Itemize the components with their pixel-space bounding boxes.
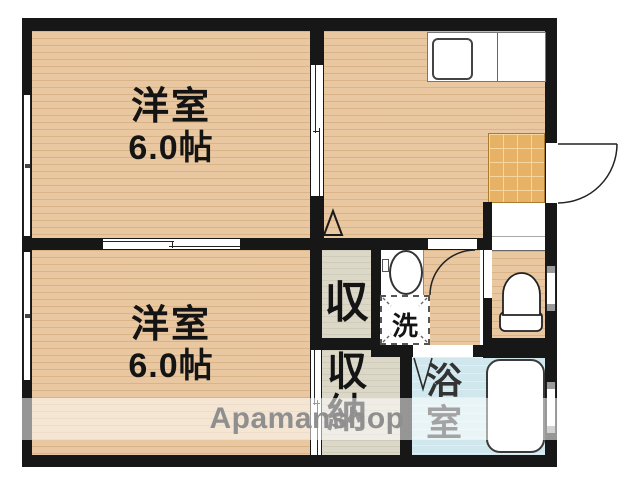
washbasin-faucet [382, 259, 389, 272]
entrance-door-opening [546, 143, 557, 203]
bathroom-threshold [413, 347, 473, 357]
window-top-room [23, 95, 31, 236]
western-room-bottom-label: 洋室 6.0帖 [32, 304, 310, 385]
entrance-step [492, 203, 545, 250]
sliding-door-between-rooms [103, 239, 240, 249]
room-name: 洋室 [32, 86, 310, 129]
window-bottom-room [23, 252, 31, 380]
window-toilet [546, 266, 556, 311]
western-room-top-label: 洋室 6.0帖 [32, 86, 310, 167]
laundry-label: 洗 [380, 306, 430, 343]
hallway-door-opening [428, 239, 477, 249]
bathroom-label-char1: 浴 [426, 360, 462, 402]
kitchen-counter [427, 32, 546, 82]
wall-toilet-bottom [483, 338, 557, 358]
wall-laundry-bottom [371, 345, 413, 357]
floor-plan: 洋室 6.0帖 洋室 6.0帖 収 収 納 洗 浴 室 Apamanshop [0, 0, 628, 480]
storage-label-char1: 収 [327, 352, 367, 394]
room-size: 6.0帖 [32, 129, 310, 167]
entrance-door-swing-arc [558, 144, 617, 203]
wall-top [22, 18, 557, 31]
wall-threshold-right [473, 345, 492, 357]
toilet-door-opening [484, 250, 492, 298]
room-size: 6.0帖 [32, 347, 310, 385]
washbasin [389, 250, 423, 295]
closet-label: 収 [322, 266, 371, 330]
watermark-text: Apamanshop [0, 398, 614, 440]
room-name: 洋室 [32, 304, 310, 347]
step-edge-line [492, 236, 545, 237]
counter-divider [497, 33, 498, 81]
kitchen-sink [432, 38, 473, 80]
wall-bottom [22, 455, 557, 467]
hallway-floor [424, 250, 480, 345]
wall-step-left [483, 202, 492, 238]
entrance-tile [488, 133, 545, 203]
toilet-room-floor [492, 250, 545, 338]
wall-mid-horizontal [22, 238, 492, 250]
watermark-band: Apamanshop [0, 398, 628, 440]
sliding-door-top-rooms [311, 65, 323, 196]
